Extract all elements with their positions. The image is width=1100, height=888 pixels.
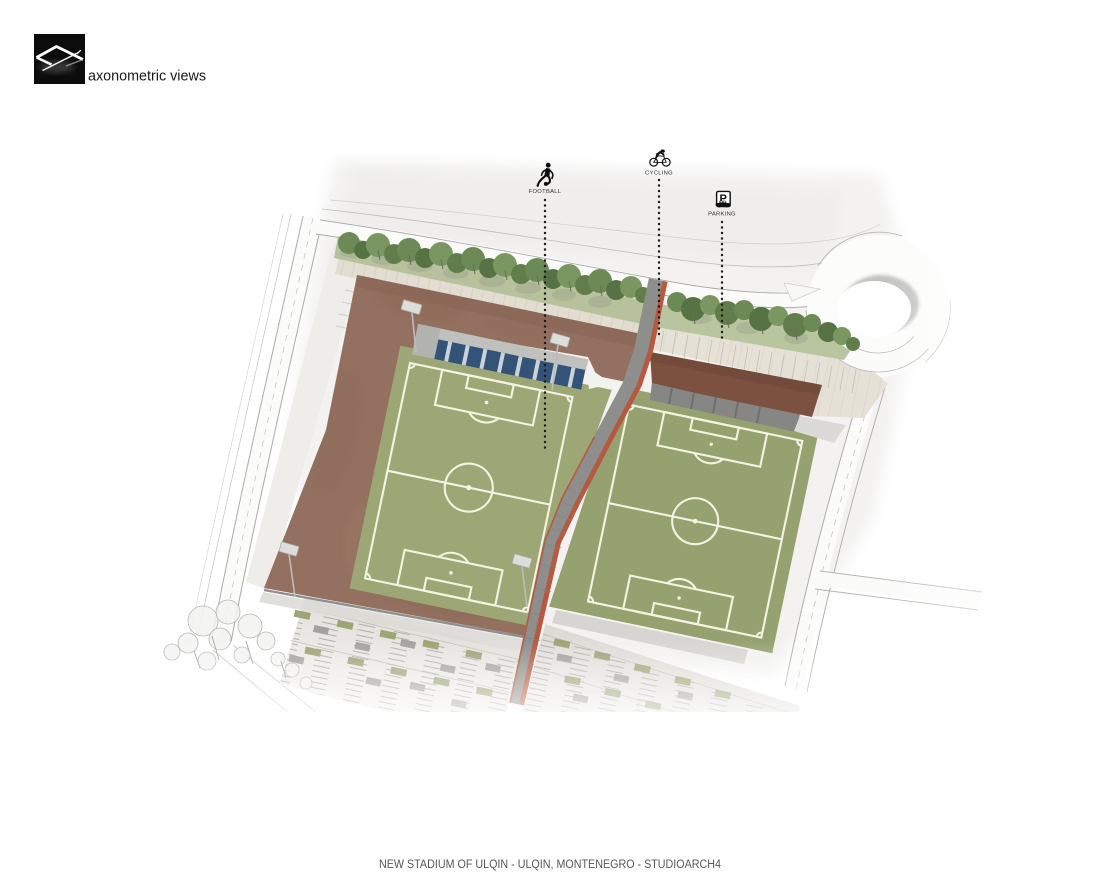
- svg-text:NEW STADIUM OF ULQIN - ULQIN,: NEW STADIUM OF ULQIN - ULQIN, MONTENEGRO…: [379, 857, 721, 871]
- svg-text:FOOTBALL: FOOTBALL: [529, 189, 562, 195]
- svg-text:axonometric views: axonometric views: [88, 68, 206, 85]
- svg-text:PARKING: PARKING: [708, 212, 736, 218]
- svg-text:CYCLING: CYCLING: [645, 170, 673, 176]
